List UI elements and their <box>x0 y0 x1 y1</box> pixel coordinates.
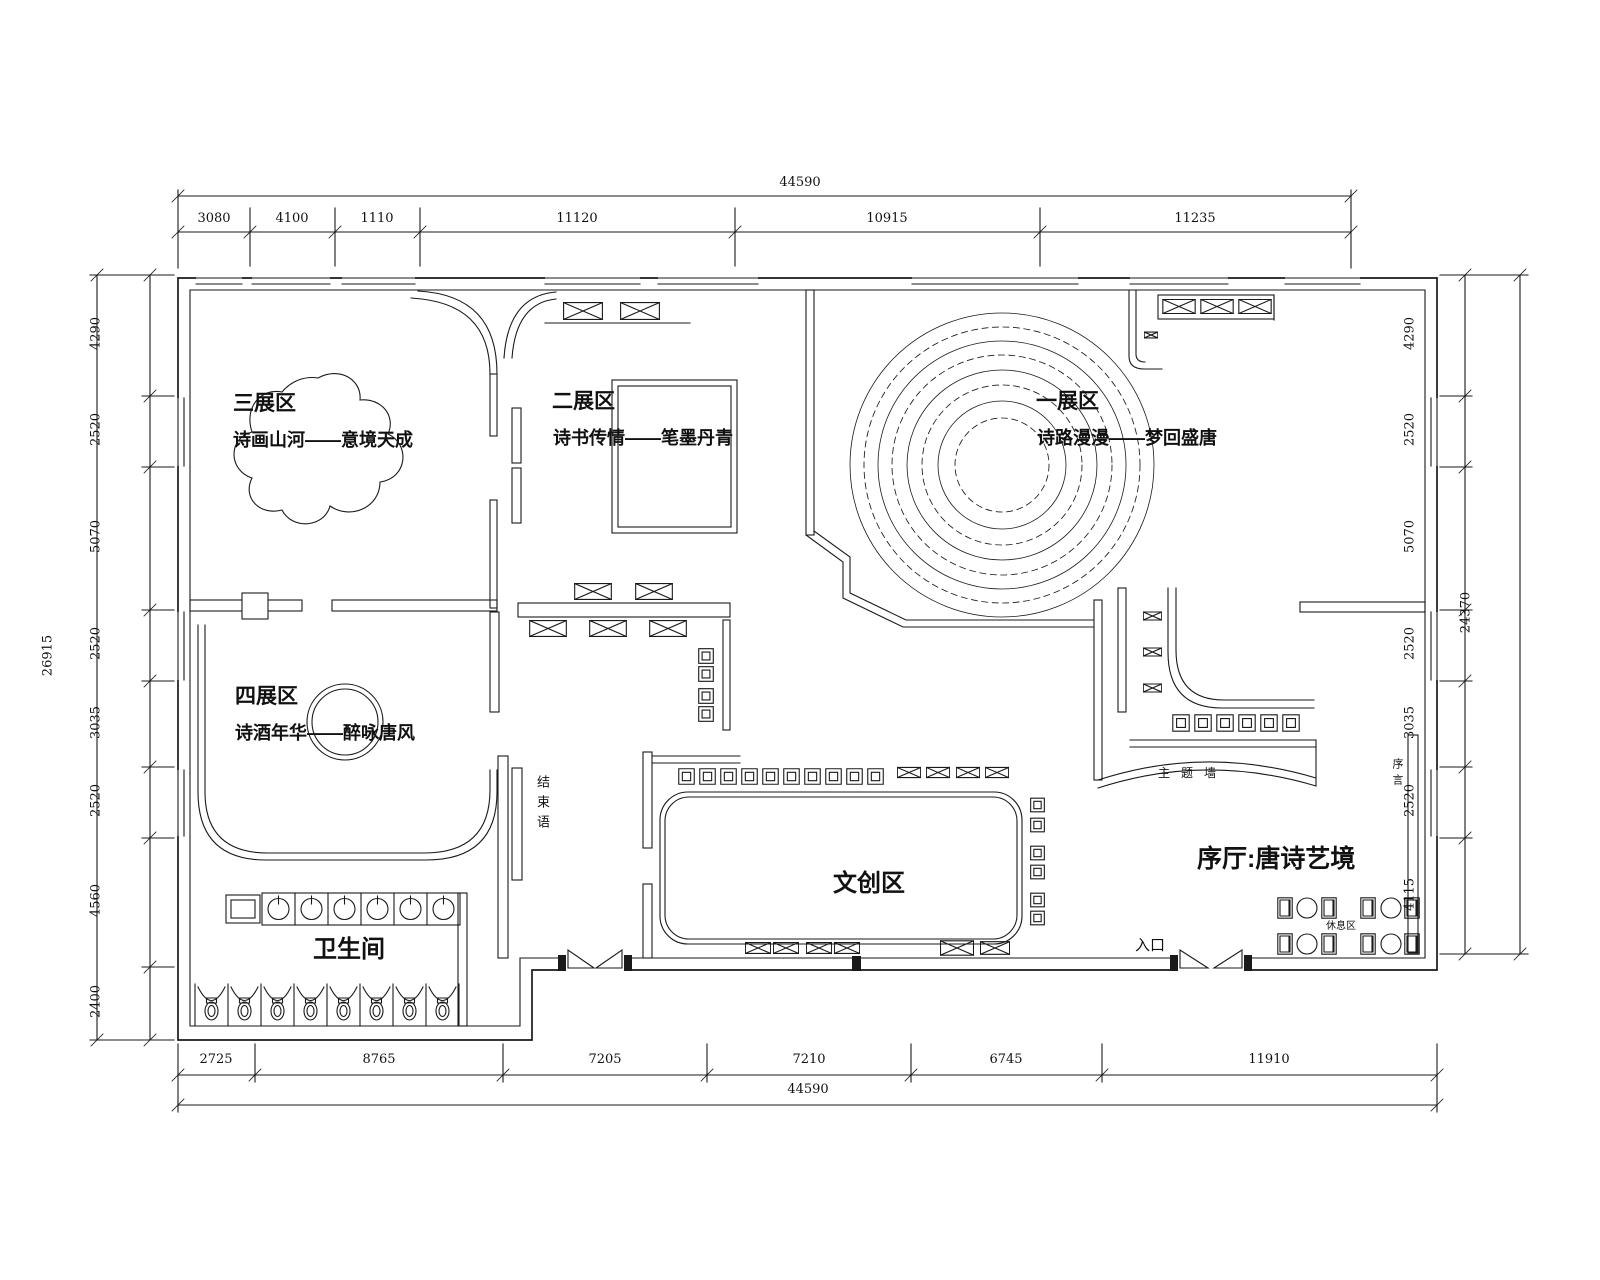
zone1-concentric-circles <box>850 313 1154 617</box>
dim-left-seg: 3035 <box>90 683 103 763</box>
dim-top-seg: 11235 <box>1155 212 1235 225</box>
zone3-title: 三展区 <box>233 393 296 414</box>
cultural-area-label: 文创区 <box>833 872 905 896</box>
dim-right-seg: 3035 <box>1404 683 1417 763</box>
theme-wall-label: 主题墙 <box>1158 767 1227 779</box>
dim-top-seg: 11120 <box>537 212 617 225</box>
zone2-subtitle: 诗书传情——笔墨丹青 <box>553 429 733 447</box>
preface-label: 序言 <box>1391 758 1402 790</box>
dim-bottom-seg: 7210 <box>769 1053 849 1066</box>
window-hatches-left <box>176 398 192 836</box>
dim-top-total: 44590 <box>760 176 840 189</box>
floor-plan-drawing: 三展区 诗画山河——意境天成 二展区 诗书传情——笔墨丹青 一展区 诗路漫漫——… <box>0 0 1600 1280</box>
dim-bottom-seg: 7205 <box>565 1053 645 1066</box>
zone4-title: 四展区 <box>235 686 298 707</box>
cultural-area <box>643 649 1044 958</box>
zone2-display-square <box>612 380 737 533</box>
dim-right-seg: 4290 <box>1404 294 1417 374</box>
dim-left-seg: 2400 <box>90 962 103 1042</box>
dimension-chain-right <box>1440 269 1528 960</box>
dim-bottom-total: 44590 <box>768 1083 848 1096</box>
interior-walls <box>190 290 1425 1026</box>
dim-top-seg: 3080 <box>174 212 254 225</box>
restroom-label: 卫生间 <box>313 938 385 962</box>
dim-bottom-seg: 2725 <box>176 1053 256 1066</box>
rest-area-label: 休息区 <box>1326 922 1356 932</box>
dim-left-seg: 2520 <box>90 761 103 841</box>
dim-bottom-seg: 8765 <box>339 1053 419 1066</box>
dim-bottom-seg: 11910 <box>1229 1053 1309 1066</box>
dim-left-seg: 2520 <box>90 390 103 470</box>
dim-left-total: 26915 <box>42 616 55 696</box>
dim-left-seg: 4290 <box>90 294 103 374</box>
dim-right-seg: 2520 <box>1404 604 1417 684</box>
dim-left-seg: 2520 <box>90 604 103 684</box>
dim-right-seg: 2520 <box>1404 761 1417 841</box>
dim-left-seg: 5070 <box>90 497 103 577</box>
dim-right-seg: 4115 <box>1404 855 1417 935</box>
wall-post <box>852 956 861 971</box>
conclusion-label: 结束语 <box>536 775 549 835</box>
dim-left-seg: 4560 <box>90 861 103 941</box>
dim-top-seg: 1110 <box>337 212 417 225</box>
dimension-chain-top <box>172 190 1357 268</box>
dim-right-seg: 5070 <box>1404 497 1417 577</box>
zone3-subtitle: 诗画山河——意境天成 <box>233 431 413 449</box>
zone1-subtitle: 诗路漫漫——梦回盛唐 <box>1037 429 1217 447</box>
display-cases <box>530 300 1271 956</box>
entrance-label: 入口 <box>1135 938 1165 953</box>
window-hatches-right <box>1423 398 1439 836</box>
dim-bottom-seg: 6745 <box>966 1053 1046 1066</box>
zone2-title: 二展区 <box>552 391 615 412</box>
entrance-door <box>1170 950 1252 972</box>
dim-right-total: 24370 <box>1460 573 1473 653</box>
dim-top-seg: 4100 <box>252 212 332 225</box>
zone1-title: 一展区 <box>1036 391 1099 412</box>
dim-top-seg: 10915 <box>847 212 927 225</box>
column <box>242 593 268 619</box>
dim-right-seg: 2520 <box>1404 390 1417 470</box>
exterior-walls <box>178 278 1437 1040</box>
zone4-subtitle: 诗酒年华——醉咏唐风 <box>235 724 415 742</box>
lobby-label: 序厅:唐诗艺境 <box>1197 847 1355 872</box>
double-door-left <box>558 950 632 972</box>
